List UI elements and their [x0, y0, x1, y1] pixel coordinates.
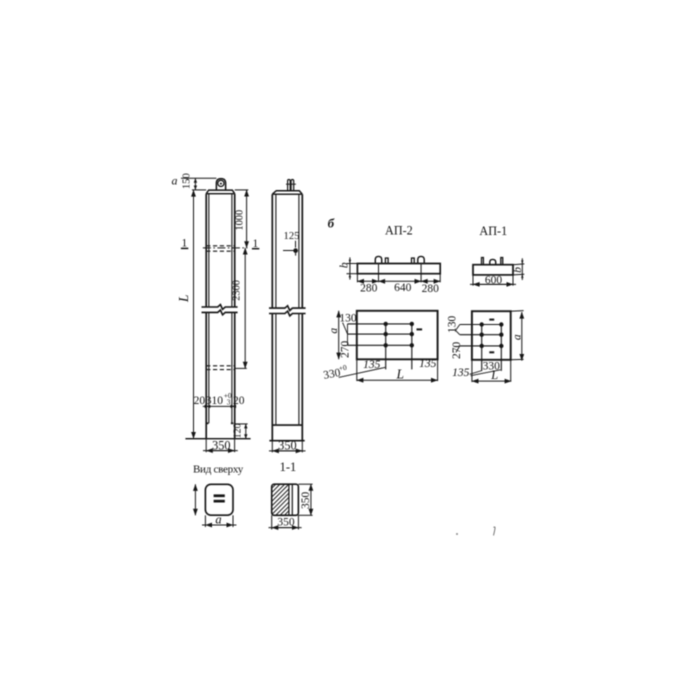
svg-text:350: 350 [277, 517, 295, 529]
svg-text:L: L [176, 294, 191, 303]
svg-text:3: 3 [227, 397, 231, 406]
svg-text:310: 310 [206, 395, 224, 407]
svg-text:2300: 2300 [232, 280, 243, 301]
svg-text:20: 20 [194, 395, 206, 407]
svg-text:280: 280 [422, 283, 440, 295]
svg-text:640: 640 [394, 282, 412, 294]
svg-text:a: a [328, 328, 340, 334]
svg-text:20: 20 [233, 395, 245, 407]
svg-text:150: 150 [182, 173, 193, 189]
svg-text:125: 125 [284, 231, 300, 242]
svg-text:120: 120 [233, 423, 244, 438]
svg-text:350: 350 [300, 491, 312, 509]
svg-text:L: L [490, 368, 498, 382]
svg-text:b: b [512, 267, 524, 273]
svg-text:280: 280 [360, 283, 378, 295]
svg-text:a: a [172, 173, 178, 187]
svg-text:L: L [396, 366, 405, 381]
svg-text:Вид сверху: Вид сверху [193, 464, 244, 476]
svg-text:130: 130 [446, 316, 458, 334]
svg-text:135: 135 [419, 358, 437, 370]
svg-text:a: a [215, 512, 221, 526]
svg-text:б: б [328, 216, 335, 231]
svg-text:АП-2: АП-2 [385, 223, 413, 237]
svg-text:135: 135 [452, 367, 470, 379]
svg-text:a: a [512, 334, 524, 340]
svg-text:b: b [338, 262, 350, 268]
svg-text:270: 270 [340, 341, 352, 359]
svg-text:130: 130 [339, 312, 357, 324]
svg-text:1-1: 1-1 [280, 460, 297, 474]
svg-text:1000: 1000 [235, 210, 246, 231]
svg-text:АП-1: АП-1 [479, 224, 507, 238]
